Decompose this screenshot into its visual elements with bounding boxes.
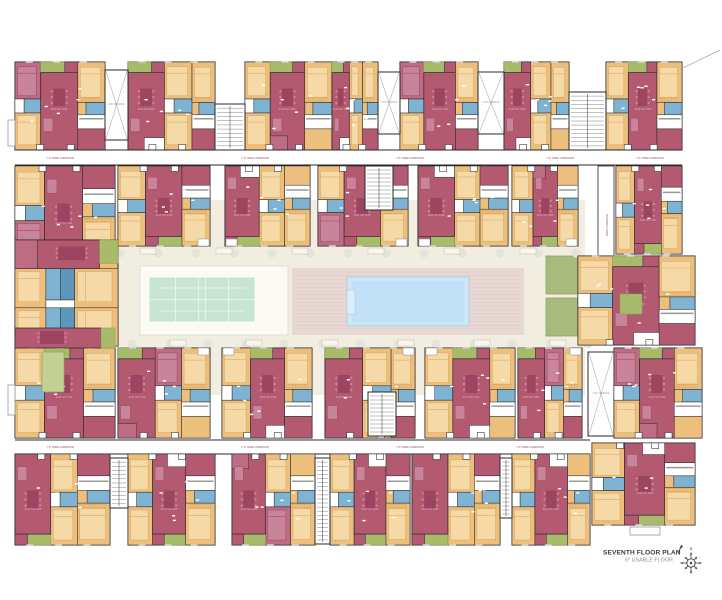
svg-text:FLAT NO 1370: FLAT NO 1370: [635, 108, 652, 111]
svg-text:FLAT NO 1350: FLAT NO 1350: [537, 214, 554, 217]
svg-text:FLAT NO 1310: FLAT NO 1310: [51, 108, 68, 111]
svg-text:FLAT NO 1360: FLAT NO 1360: [509, 108, 526, 111]
svg-text:FLAT NO 1340: FLAT NO 1340: [428, 214, 445, 217]
svg-text:7'-6" WIDE CORRIDOR: 7'-6" WIDE CORRIDOR: [241, 156, 269, 160]
svg-text:FLAT NO 1350: FLAT NO 1350: [523, 396, 540, 399]
svg-text:FLAT NO 1310: FLAT NO 1310: [156, 214, 173, 217]
svg-text:FLAT NO 1350: FLAT NO 1350: [649, 396, 666, 399]
svg-text:FLAT NO 1360: FLAT NO 1360: [543, 508, 560, 511]
svg-text:WIDE CORRIDOR: WIDE CORRIDOR: [605, 214, 609, 236]
svg-text:7'-6" WIDE CORRIDOR: 7'-6" WIDE CORRIDOR: [396, 156, 424, 160]
svg-text:FLAT NO 1330: FLAT NO 1330: [279, 108, 296, 111]
svg-text:7'-6" WIDE CORRIDOR: 7'-6" WIDE CORRIDOR: [241, 445, 269, 449]
svg-text:7'-6" WIDE CORRIDOR: 7'-6" WIDE CORRIDOR: [46, 445, 74, 449]
svg-text:FLAT NO 1320: FLAT NO 1320: [161, 508, 178, 511]
svg-text:FLAT NO 1310: FLAT NO 1310: [25, 508, 42, 511]
svg-text:FLAT NO 1350: FLAT NO 1350: [422, 508, 439, 511]
svg-text:FLAT NO 1330: FLAT NO 1330: [241, 508, 258, 511]
svg-text:7'-6" WIDE CORRIDOR: 7'-6" WIDE CORRIDOR: [516, 445, 544, 449]
svg-text:7'-6" WIDE CORRIDOR: 7'-6" WIDE CORRIDOR: [46, 156, 74, 160]
svg-text:FLAT NO 1370: FLAT NO 1370: [56, 396, 73, 399]
svg-text:FLAT NO 1330: FLAT NO 1330: [354, 214, 371, 217]
svg-text:FLAT NO 1310: FLAT NO 1310: [129, 396, 146, 399]
svg-text:FLAT NO 1320: FLAT NO 1320: [138, 108, 155, 111]
svg-text:FLAT NO 1330: FLAT NO 1330: [640, 219, 657, 222]
svg-text:FLAT NO 1340: FLAT NO 1340: [463, 396, 480, 399]
svg-text:7'-6" WIDE CORRIDOR: 7'-6" WIDE CORRIDOR: [396, 445, 424, 449]
svg-text:FLAT NO 1320: FLAT NO 1320: [234, 214, 251, 217]
svg-text:7'-6" WIDE CORRIDOR: 7'-6" WIDE CORRIDOR: [636, 156, 664, 160]
svg-text:LOW TERRACE: LOW TERRACE: [381, 101, 398, 104]
svg-text:6* USABLE FLOOR: 6* USABLE FLOOR: [625, 558, 673, 564]
svg-text:7'-6" WIDE CORRIDOR: 7'-6" WIDE CORRIDOR: [546, 156, 574, 160]
svg-text:FLAT NO 1320: FLAT NO 1320: [260, 396, 277, 399]
svg-text:FLAT NO 1360: FLAT NO 1360: [637, 492, 654, 495]
svg-text:FLAT NO 1340: FLAT NO 1340: [362, 508, 379, 511]
svg-text:LOW TERRACE: LOW TERRACE: [108, 103, 125, 106]
svg-text:LOW TERRACE: LOW TERRACE: [483, 101, 500, 104]
svg-text:FLAT NO 1350: FLAT NO 1350: [432, 108, 449, 111]
svg-text:LOW TERRACE: LOW TERRACE: [593, 392, 610, 395]
svg-text:SEVENTH FLOOR PLAN: SEVENTH FLOOR PLAN: [603, 550, 681, 557]
